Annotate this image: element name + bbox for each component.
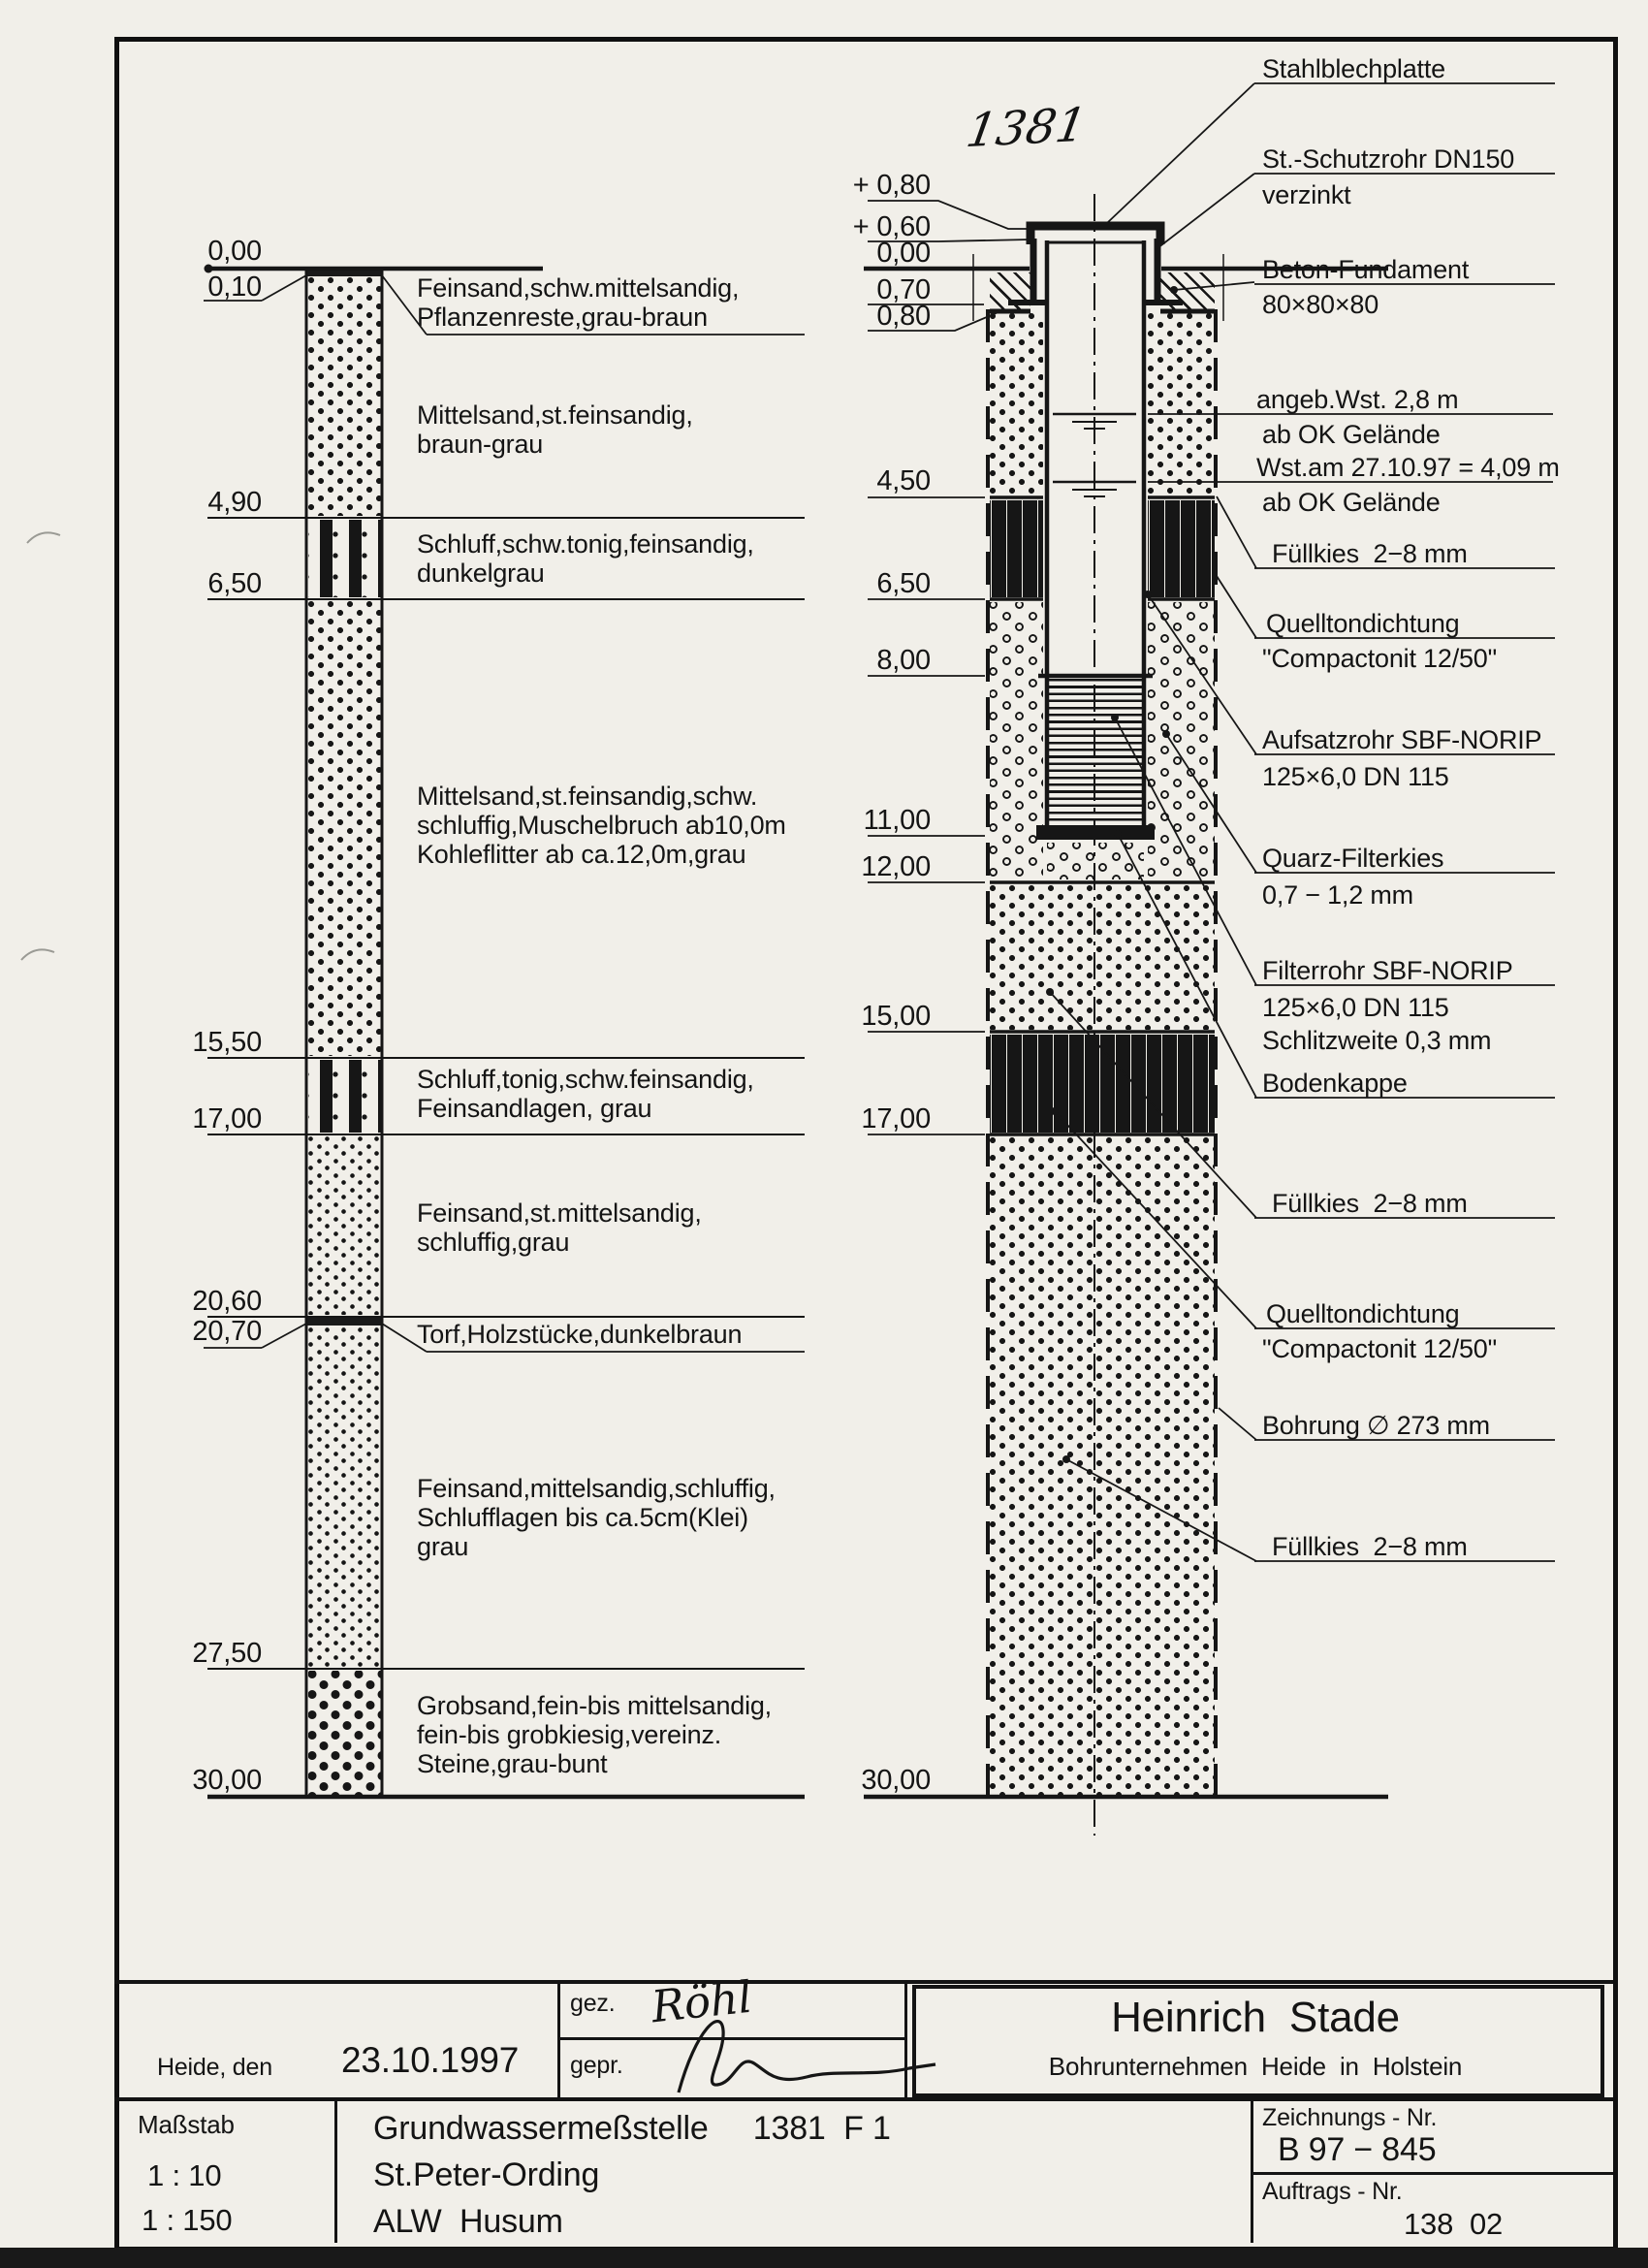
level-6-50: 6,50 (824, 568, 931, 600)
level-17-00: 17,00 (824, 1103, 931, 1135)
level-0-00: 0,00 (824, 238, 931, 270)
depth-label-15-50: 15,50 (165, 1027, 262, 1059)
handwritten-number: 1381 (963, 98, 1090, 158)
depth-label-17-00: 17,00 (165, 1103, 262, 1135)
depth-label-27-50: 27,50 (165, 1638, 262, 1670)
depth-label-6-50: 6,50 (165, 568, 262, 600)
annotation-quarz-filterkies: Quarz-Filterkies (1262, 844, 1443, 874)
scale-2: 1 : 150 (142, 2203, 232, 2238)
annotation-filterrohr-2: 125×6,0 DN 115 (1262, 993, 1449, 1023)
company-name: Heinrich Stade (916, 1994, 1595, 2042)
level-11-00: 11,00 (824, 805, 931, 837)
scanned-drawing-page: 1381 0,00 0,10 4,90 6,50 15,50 17,00 20,… (0, 0, 1648, 2268)
stratum-desc-7: Torf,Holzstücke,dunkelbraun (417, 1320, 742, 1349)
depth-label-20-70: 20,70 (165, 1316, 262, 1348)
annotation-quellton-2: Quelltondichtung (1266, 1299, 1459, 1329)
company-subtitle: Bohrunternehmen Heide in Holstein (916, 2052, 1595, 2082)
annotation-quellton-1: Quelltondichtung (1266, 609, 1459, 639)
annotation-fuellkies-2: Füllkies 2−8 mm (1272, 1189, 1468, 1219)
depth-label-30-00: 30,00 (165, 1765, 262, 1797)
annotation-wst-measured: Wst.am 27.10.97 = 4,09 m (1256, 453, 1560, 483)
project-location: St.Peter-Ording (373, 2156, 599, 2194)
annotation-wst-angeb-2: ab OK Gelände (1262, 420, 1441, 450)
annotation-schutzrohr-2: verzinkt (1262, 180, 1350, 210)
annotation-beton-fundament: Beton-Fundament (1262, 255, 1469, 285)
place-label: Heide, den (157, 2054, 272, 2082)
level-15-00: 15,00 (824, 1001, 931, 1033)
stratum-desc-8: Feinsand,mittelsandig,schluffig, Schluff… (417, 1474, 776, 1561)
gez-label: gez. (570, 1990, 615, 2018)
level-30-00: 30,00 (824, 1765, 931, 1797)
level-0-80: 0,80 (824, 301, 931, 333)
level-8-00: 8,00 (824, 645, 931, 677)
annotation-beton-size: 80×80×80 (1262, 290, 1379, 320)
depth-label-20-60: 20,60 (165, 1286, 262, 1318)
annotation-wst-angeb: angeb.Wst. 2,8 m (1256, 385, 1458, 415)
zeichnungs-nr: B 97 − 845 (1278, 2131, 1436, 2169)
auftrags-nr: 138 02 (1404, 2207, 1503, 2242)
annotation-bohrung: Bohrung ∅ 273 mm (1262, 1411, 1490, 1441)
stratum-desc-3: Schluff,schw.tonig,feinsandig, dunkelgra… (417, 529, 754, 588)
zeichnungs-label: Zeichnungs - Nr. (1262, 2104, 1437, 2132)
depth-label-4-90: 4,90 (165, 487, 262, 519)
level-4-50: 4,50 (824, 465, 931, 497)
stratum-desc-1: Feinsand,schw.mittelsandig, Pflanzenrest… (417, 273, 739, 332)
annotation-aufsatzrohr-2: 125×6,0 DN 115 (1262, 762, 1449, 792)
level-plus-0-80: + 0,80 (824, 170, 931, 202)
stratum-desc-6: Feinsand,st.mittelsandig, schluffig,grau (417, 1198, 702, 1257)
depth-label-0-00: 0,00 (165, 236, 262, 268)
annotation-quarz-filterkies-2: 0,7 − 1,2 mm (1262, 880, 1413, 910)
annotation-bodenkappe: Bodenkappe (1262, 1069, 1408, 1099)
annotation-quellton-2b: "Compactonit 12/50" (1262, 1334, 1497, 1364)
annotation-fuellkies-3: Füllkies 2−8 mm (1272, 1532, 1468, 1562)
depth-label-0-10: 0,10 (165, 272, 262, 303)
masstab-label: Maßstab (138, 2110, 235, 2140)
stratum-desc-4: Mittelsand,st.feinsandig,schw. schluffig… (417, 782, 786, 869)
level-12-00: 12,00 (824, 851, 931, 883)
annotation-stahlblechplatte: Stahlblechplatte (1262, 54, 1445, 84)
annotation-wst-measured-2: ab OK Gelände (1262, 488, 1441, 518)
gepr-signature (679, 2022, 935, 2092)
annotation-aufsatzrohr: Aufsatzrohr SBF-NORIP (1262, 725, 1541, 755)
date: 23.10.1997 (341, 2040, 519, 2081)
bottom-cap (1036, 825, 1155, 840)
stratum-desc-9: Grobsand,fein-bis mittelsandig, fein-bis… (417, 1691, 772, 1778)
annotation-filterrohr: Filterrohr SBF-NORIP (1262, 956, 1513, 986)
annotation-filterrohr-3: Schlitzweite 0,3 mm (1262, 1026, 1491, 1056)
gez-signature: Röhl (650, 1971, 755, 2033)
annotation-fuellkies-1: Füllkies 2−8 mm (1272, 539, 1468, 569)
auftrags-label: Auftrags - Nr. (1262, 2178, 1402, 2206)
project-title: Grundwassermeßstelle 1381 F 1 (373, 2110, 891, 2148)
project-client: ALW Husum (373, 2203, 563, 2241)
stratum-desc-5: Schluff,tonig,schw.feinsandig, Feinsandl… (417, 1065, 754, 1123)
scale-1: 1 : 10 (147, 2158, 221, 2193)
stratum-desc-2: Mittelsand,st.feinsandig, braun-grau (417, 400, 693, 459)
scanner-edge-bar (0, 2248, 1648, 2268)
annotation-quellton-1b: "Compactonit 12/50" (1262, 644, 1497, 674)
gepr-label: gepr. (570, 2052, 623, 2080)
annotation-schutzrohr: St.-Schutzrohr DN150 (1262, 144, 1514, 175)
